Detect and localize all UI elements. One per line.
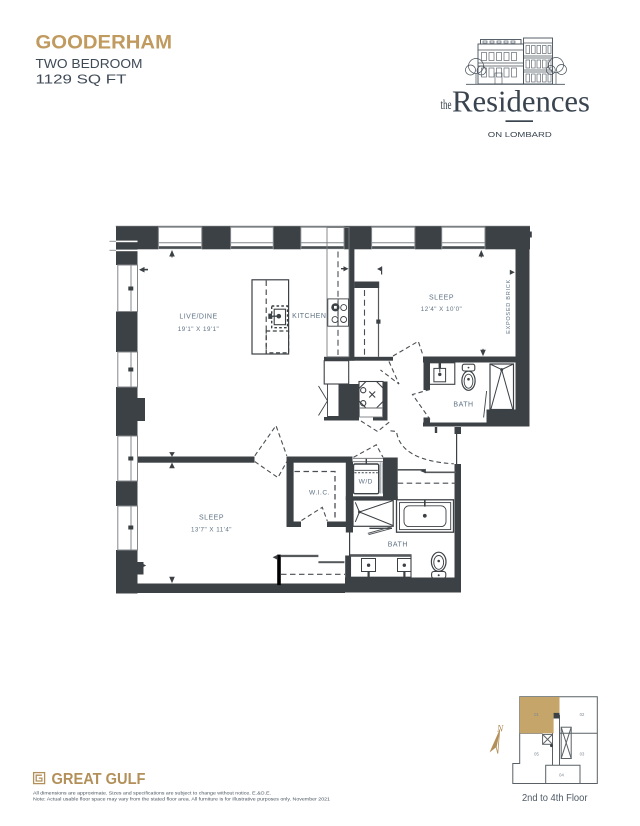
svg-text:SLEEP: SLEEP <box>429 295 454 302</box>
svg-text:the: the <box>441 98 452 113</box>
svg-text:W.I.C.: W.I.C. <box>309 490 330 497</box>
svg-text:KITCHEN: KITCHEN <box>292 313 326 320</box>
svg-text:SLEEP: SLEEP <box>199 515 224 522</box>
svg-text:W/D: W/D <box>359 479 373 486</box>
svg-text:GOODERHAM: GOODERHAM <box>36 31 173 53</box>
svg-text:04: 04 <box>559 773 564 778</box>
svg-text:GREAT GULF: GREAT GULF <box>52 771 146 788</box>
svg-text:N: N <box>496 725 504 735</box>
svg-text:19'1" X 19'1": 19'1" X 19'1" <box>178 326 219 333</box>
svg-text:05: 05 <box>534 752 539 757</box>
svg-text:All dimensions are approximate: All dimensions are approximate. Sizes an… <box>33 791 271 797</box>
svg-text:Residences: Residences <box>452 85 590 119</box>
svg-text:13'7" X 11'4": 13'7" X 11'4" <box>191 527 232 534</box>
svg-text:2nd to 4th Floor: 2nd to 4th Floor <box>522 793 588 804</box>
svg-text:LIVE/DINE: LIVE/DINE <box>179 314 217 321</box>
svg-text:Note: Actual usable floor spac: Note: Actual usable floor space may vary… <box>33 797 330 803</box>
svg-text:03: 03 <box>580 752 585 757</box>
svg-text:02: 02 <box>580 712 585 717</box>
svg-text:01: 01 <box>534 712 539 717</box>
svg-text:EXPOSED BRICK: EXPOSED BRICK <box>506 279 512 334</box>
svg-text:TWO BEDROOM: TWO BEDROOM <box>36 56 143 71</box>
svg-text:BATH: BATH <box>388 542 408 549</box>
svg-text:1129 SQ FT: 1129 SQ FT <box>36 71 127 86</box>
svg-text:12'4" X 10'0": 12'4" X 10'0" <box>421 306 462 313</box>
svg-text:ON LOMBARD: ON LOMBARD <box>488 130 552 139</box>
svg-text:BATH: BATH <box>453 402 473 409</box>
